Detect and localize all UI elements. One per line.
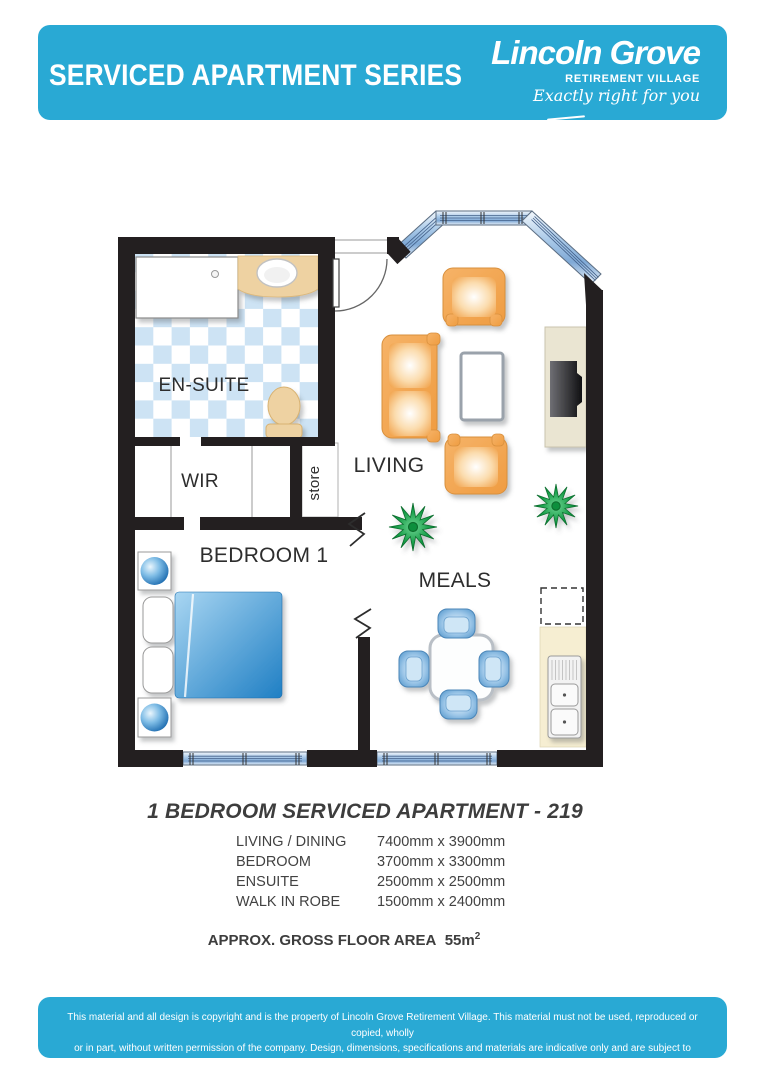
label-ensuite: EN-SUITE: [158, 375, 249, 396]
label-meals: MEALS: [419, 569, 492, 592]
flyer-page: { "header": { "series_title": "SERVICED …: [0, 0, 765, 1080]
table-row: ENSUITE 2500mm x 2500mm: [236, 872, 505, 892]
table-row: BEDROOM 3700mm x 3300mm: [236, 852, 505, 872]
dim-room: LIVING / DINING: [236, 832, 373, 852]
kitchen-sink: [548, 656, 581, 738]
table-row: WALK IN ROBE 1500mm x 2400mm: [236, 892, 505, 912]
plan-title: 1 BEDROOM SERVICED APARTMENT - 219: [0, 800, 730, 824]
toilet: [266, 387, 302, 438]
dim-room: BEDROOM: [236, 852, 373, 872]
copyright-line-1: This material and all design is copyrigh…: [64, 1010, 701, 1041]
bedroom-window: [183, 752, 307, 765]
vanity-sink: [238, 256, 318, 297]
area-label: APPROX. GROSS FLOOR AREA: [208, 932, 437, 949]
pillow-2: [143, 647, 173, 693]
meals-window: [377, 752, 497, 765]
floor-plan: EN-SUITE WIR store LIVING BEDROOM 1 MEAL…: [100, 200, 665, 780]
copyright-line-2: or in part, without written permission o…: [64, 1041, 701, 1072]
bedside-table-top: [138, 552, 171, 590]
fridge-space: [541, 588, 583, 624]
brand-name: Lincoln Grove: [491, 36, 700, 70]
copyright-text: This material and all design is copyrigh…: [38, 997, 727, 1072]
pillow-1: [143, 597, 173, 643]
label-wir: WIR: [181, 471, 219, 492]
plant-2: [534, 484, 578, 528]
tv-unit: [545, 327, 586, 447]
dim-room: ENSUITE: [236, 872, 373, 892]
footer-band: This material and all design is copyrigh…: [38, 997, 727, 1058]
entry-door: [333, 238, 387, 311]
brand-logo: Lincoln Grove RETIREMENT VILLAGE Exactly…: [491, 36, 700, 105]
header-band: SERVICED APARTMENT SERIES Lincoln Grove …: [38, 25, 727, 120]
table-row: LIVING / DINING 7400mm x 3900mm: [236, 832, 505, 852]
bed: [175, 592, 282, 698]
gross-floor-area: APPROX. GROSS FLOOR AREA 55m2: [0, 931, 688, 949]
dim-size: 2500mm x 2500mm: [377, 874, 505, 890]
shower: [136, 257, 238, 318]
area-value: 55m: [445, 932, 475, 949]
dim-size: 1500mm x 2400mm: [377, 894, 505, 910]
brand-subtitle: RETIREMENT VILLAGE: [491, 73, 700, 85]
dim-size: 3700mm x 3300mm: [377, 854, 505, 870]
tagline-flourish: [547, 115, 585, 120]
label-bedroom: BEDROOM 1: [200, 544, 329, 567]
armchair-top: [443, 268, 505, 326]
dimensions-table: LIVING / DINING 7400mm x 3900mm BEDROOM …: [236, 832, 505, 912]
coffee-table: [461, 353, 503, 420]
wall-break-mark-2: [355, 609, 371, 638]
dim-room: WALK IN ROBE: [236, 892, 373, 912]
label-living: LIVING: [354, 454, 425, 477]
dim-size: 7400mm x 3900mm: [377, 834, 505, 850]
area-superscript: 2: [475, 931, 481, 942]
series-title: SERVICED APARTMENT SERIES: [49, 59, 462, 93]
plant-1: [389, 503, 437, 551]
armchair-bottom: [445, 434, 507, 494]
sofa: [382, 333, 440, 442]
bedside-table-bottom: [138, 698, 171, 737]
label-store: store: [306, 466, 323, 501]
brand-tagline: Exactly right for you: [491, 86, 700, 105]
